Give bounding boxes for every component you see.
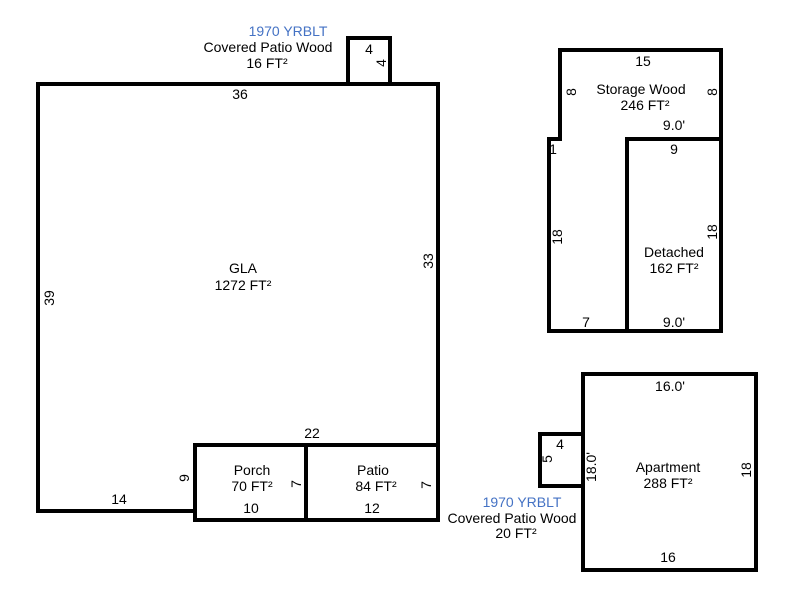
gla-dim-left: 39 [42, 290, 56, 306]
apartment-dim-right: 18 [739, 462, 753, 478]
patio-area: 84 FT² [355, 479, 396, 493]
apartment-dim-bottom: 16 [660, 550, 676, 564]
storage-dim-left-upper: 8 [564, 88, 578, 96]
gla-dim-right: 33 [421, 253, 435, 269]
apartment-area: 288 FT² [643, 476, 692, 490]
covered-patio-top-area: 16 FT² [246, 56, 287, 70]
gla-area: 1272 FT² [215, 278, 272, 292]
storage-dim-left-lower: 18 [550, 229, 564, 245]
porch-dim-right: 7 [289, 480, 303, 488]
gla-dim-notch-vertical: 9 [177, 474, 191, 482]
covered-patio-top-name: Covered Patio Wood [204, 40, 333, 54]
gla-name: GLA [229, 261, 257, 275]
detached-dim-top: 9 [670, 142, 678, 156]
detached-name: Detached [644, 245, 704, 259]
covered-patio-bottom-name: Covered Patio Wood [448, 511, 577, 525]
gla-dim-notch-horizontal: 22 [304, 426, 320, 440]
covered-patio-bottom-dim-top: 4 [556, 437, 564, 451]
gla-dim-top: 36 [232, 87, 248, 101]
storage-area: 246 FT² [620, 98, 669, 112]
apartment-dim-left: 18.0' [584, 452, 598, 482]
detached-area: 162 FT² [649, 261, 698, 275]
patio-dim-bottom: 12 [364, 501, 380, 515]
gla-dim-bottom-left: 14 [111, 492, 127, 506]
floor-plan-sketch: GLA 1272 FT² 36 39 33 14 22 9 1970 YRBLT… [0, 0, 800, 600]
apartment-name: Apartment [636, 460, 701, 474]
storage-dim-jog: 1 [549, 142, 557, 156]
porch-dim-bottom: 10 [243, 501, 259, 515]
patio-name: Patio [357, 463, 389, 477]
storage-dim-right-upper: 8 [705, 88, 719, 96]
covered-patio-top-dim-right: 4 [374, 59, 388, 67]
storage-dim-bottom: 7 [582, 315, 590, 329]
storage-dim-inner-top: 9.0' [663, 118, 685, 132]
storage-dim-top: 15 [635, 54, 651, 68]
detached-dim-bottom: 9.0' [663, 315, 685, 329]
covered-patio-top-yrblt: 1970 YRBLT [249, 24, 328, 38]
patio-dim-right: 7 [419, 481, 433, 489]
covered-patio-bottom-dim-left: 5 [540, 455, 554, 463]
storage-name: Storage Wood [596, 82, 685, 96]
covered-patio-top-dim-top: 4 [365, 42, 373, 56]
apartment-dim-top: 16.0' [655, 379, 685, 393]
detached-dim-right: 18 [705, 224, 719, 240]
porch-area: 70 FT² [231, 479, 272, 493]
covered-patio-bottom-yrblt: 1970 YRBLT [483, 495, 562, 509]
covered-patio-bottom-area: 20 FT² [495, 526, 536, 540]
porch-name: Porch [234, 463, 271, 477]
